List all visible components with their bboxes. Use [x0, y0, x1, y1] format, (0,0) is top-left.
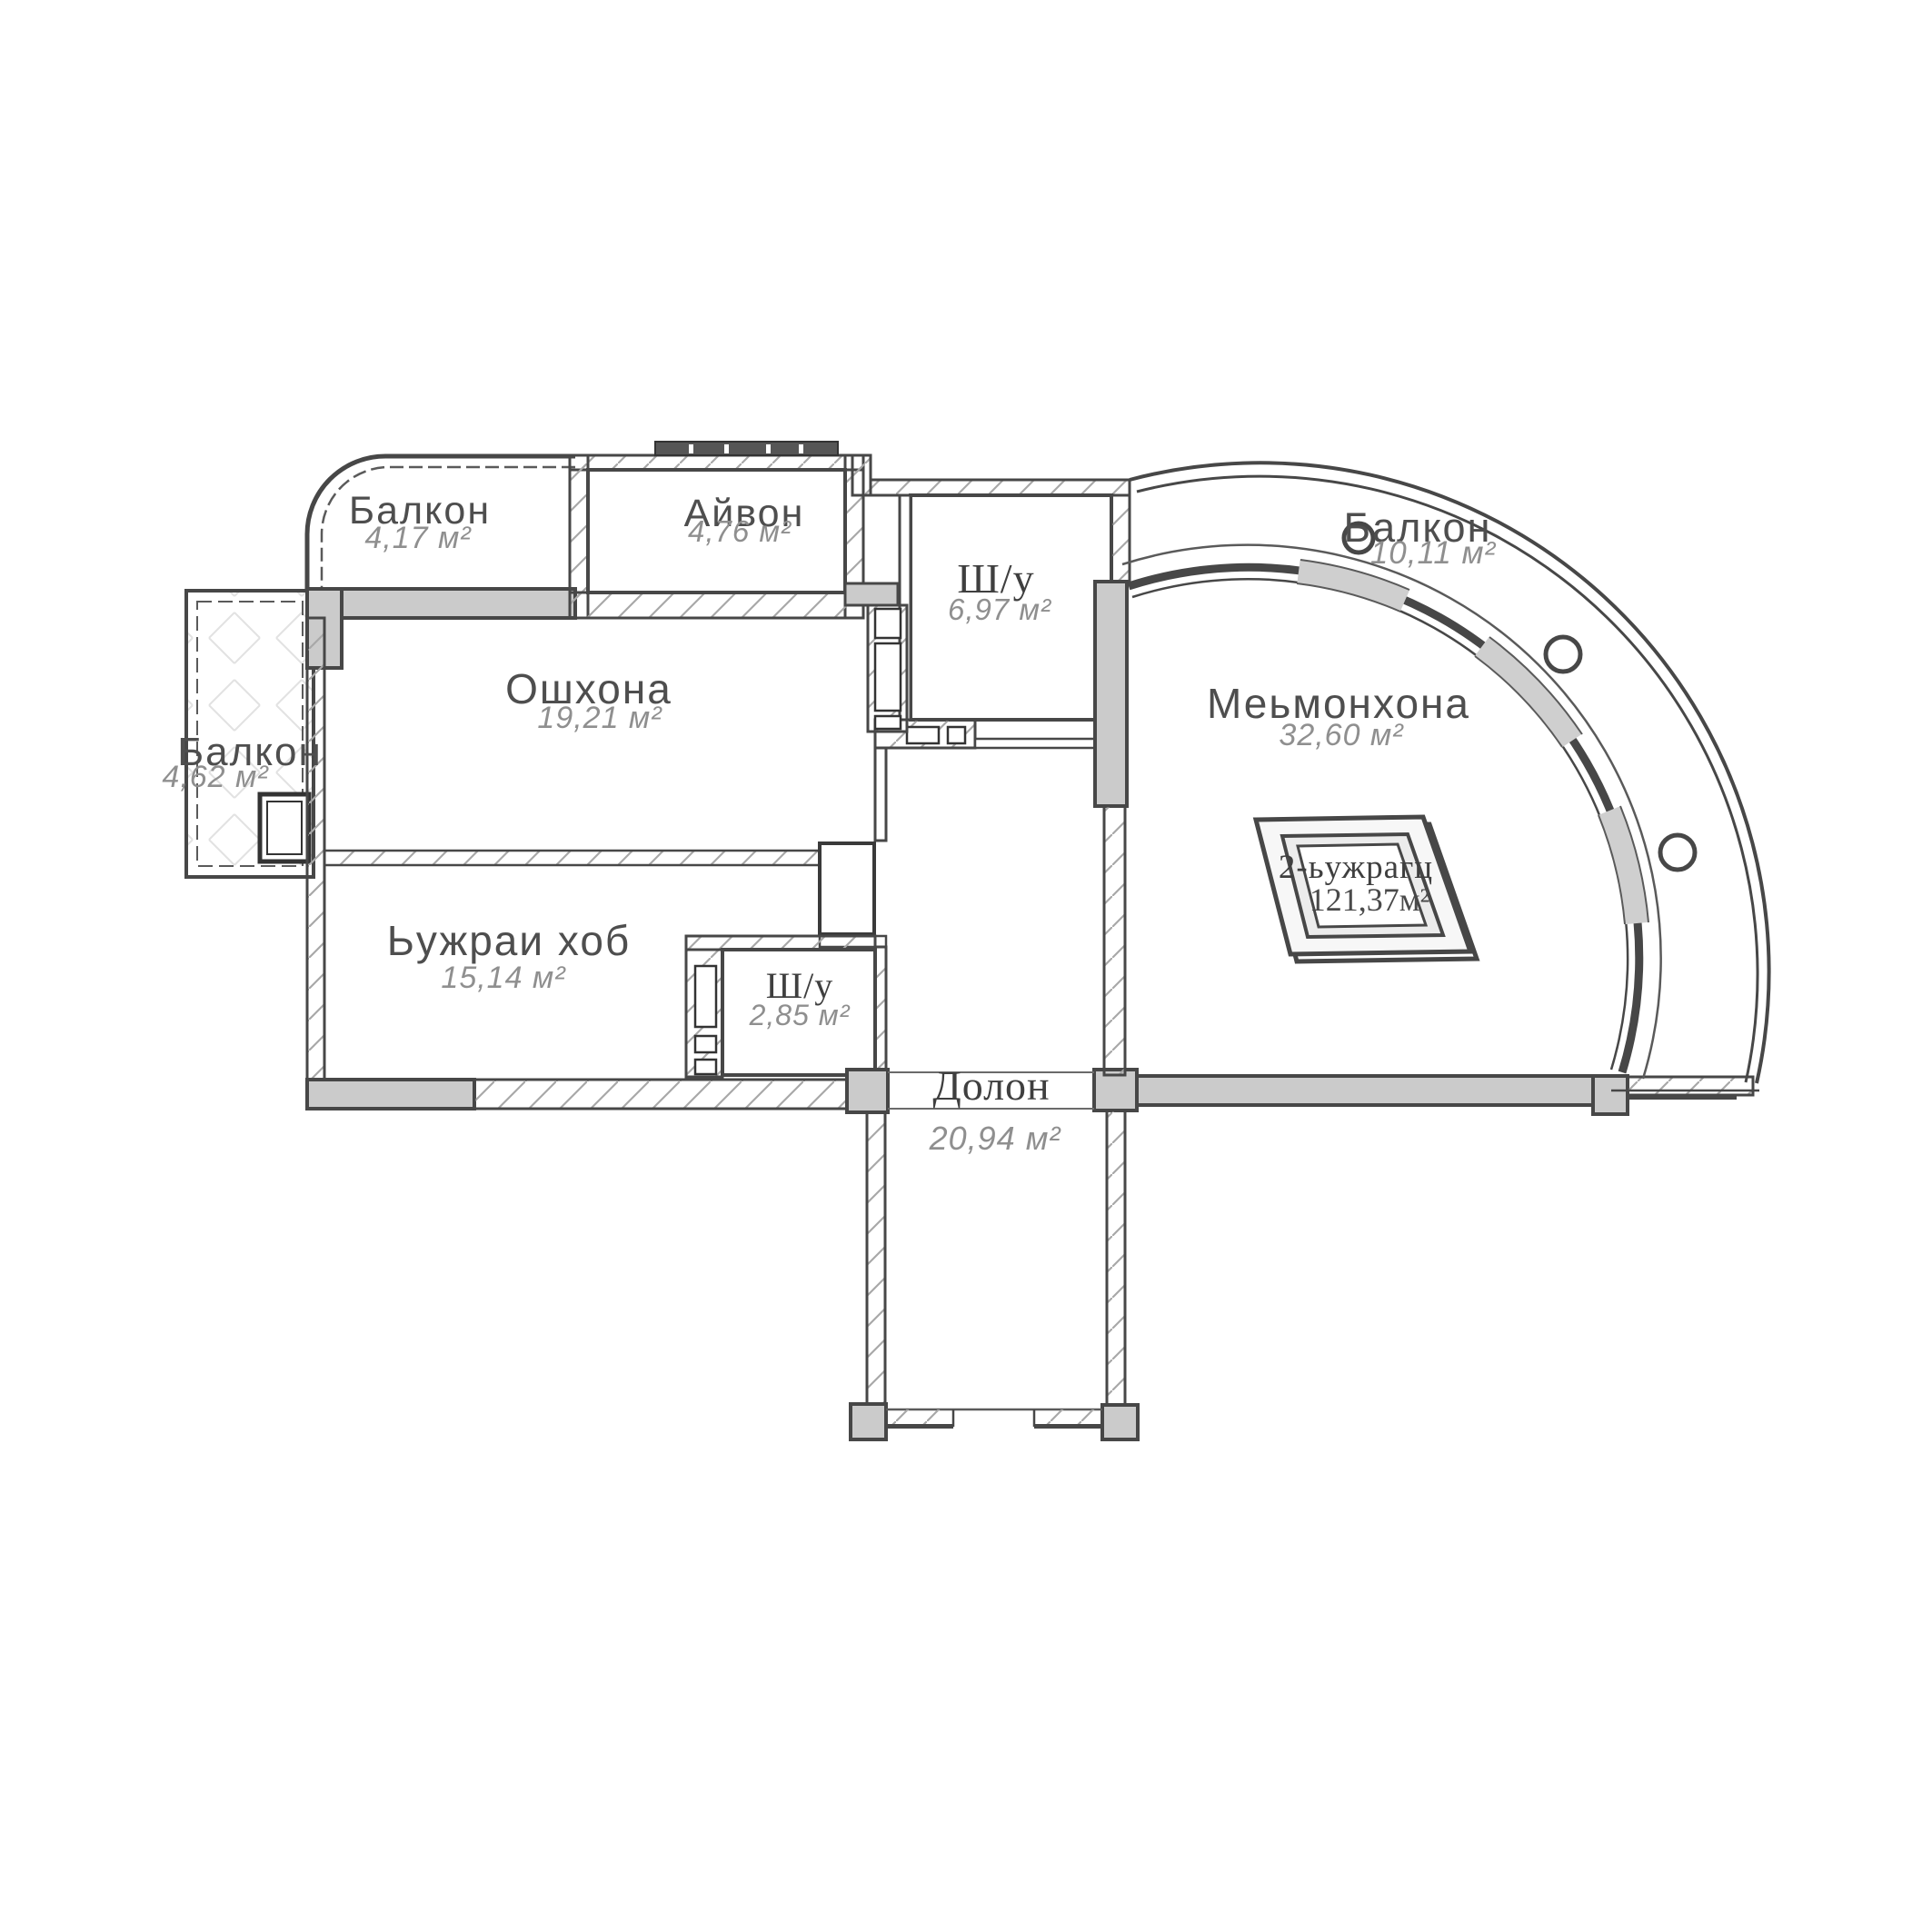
- wall-under-balcony: [307, 589, 575, 618]
- column: [1593, 1076, 1628, 1114]
- area-balcony-right: 10,11 м²: [1370, 535, 1497, 571]
- area-balcony-left: 4,62 м²: [162, 760, 269, 794]
- area-ayvon: 4,76 м²: [688, 514, 792, 548]
- area-shu-small: 2,85 м²: [749, 999, 851, 1031]
- plumbing-chase-top: [845, 583, 907, 732]
- column: [847, 1070, 888, 1112]
- column-wall: [1095, 582, 1127, 806]
- door-leaf: [820, 843, 874, 934]
- area-balcony-top-left: 4,17 м²: [364, 521, 472, 555]
- balcony-column: [1660, 835, 1695, 870]
- window-ayvon: [655, 442, 838, 455]
- floor-plan-canvas: Балкон 4,17 м² Айвон 4,76 м² Ш/у 6,97 м²…: [0, 0, 1932, 1932]
- area-shu-top: 6,97 м²: [948, 593, 1051, 626]
- area-oshxona: 19,21 м²: [537, 701, 662, 735]
- balcony-top-left-structure: [307, 456, 575, 668]
- floor-plan-drawing: Балкон 4,17 м² Айвон 4,76 м² Ш/у 6,97 м²…: [0, 0, 1932, 1932]
- area-unit: 121,37м²: [1310, 881, 1430, 918]
- column: [1102, 1405, 1138, 1439]
- balcony-floor-edge: [1122, 545, 1661, 1079]
- area-mehmonxona: 32,60 м²: [1279, 718, 1404, 752]
- column: [851, 1404, 886, 1439]
- balcony-column: [1546, 637, 1580, 672]
- area-bujrai-hob: 15,14 м²: [441, 961, 566, 995]
- wall-room-divider: [324, 851, 820, 865]
- label-bujrai-hob: Ьужраи хоб: [387, 917, 632, 964]
- area-dolon: 20,94 м²: [929, 1120, 1062, 1157]
- door-sill-shu-top: [975, 739, 1102, 748]
- label-dolon: Долон: [932, 1062, 1050, 1109]
- label-unit: 2-ьужрагц: [1279, 849, 1433, 886]
